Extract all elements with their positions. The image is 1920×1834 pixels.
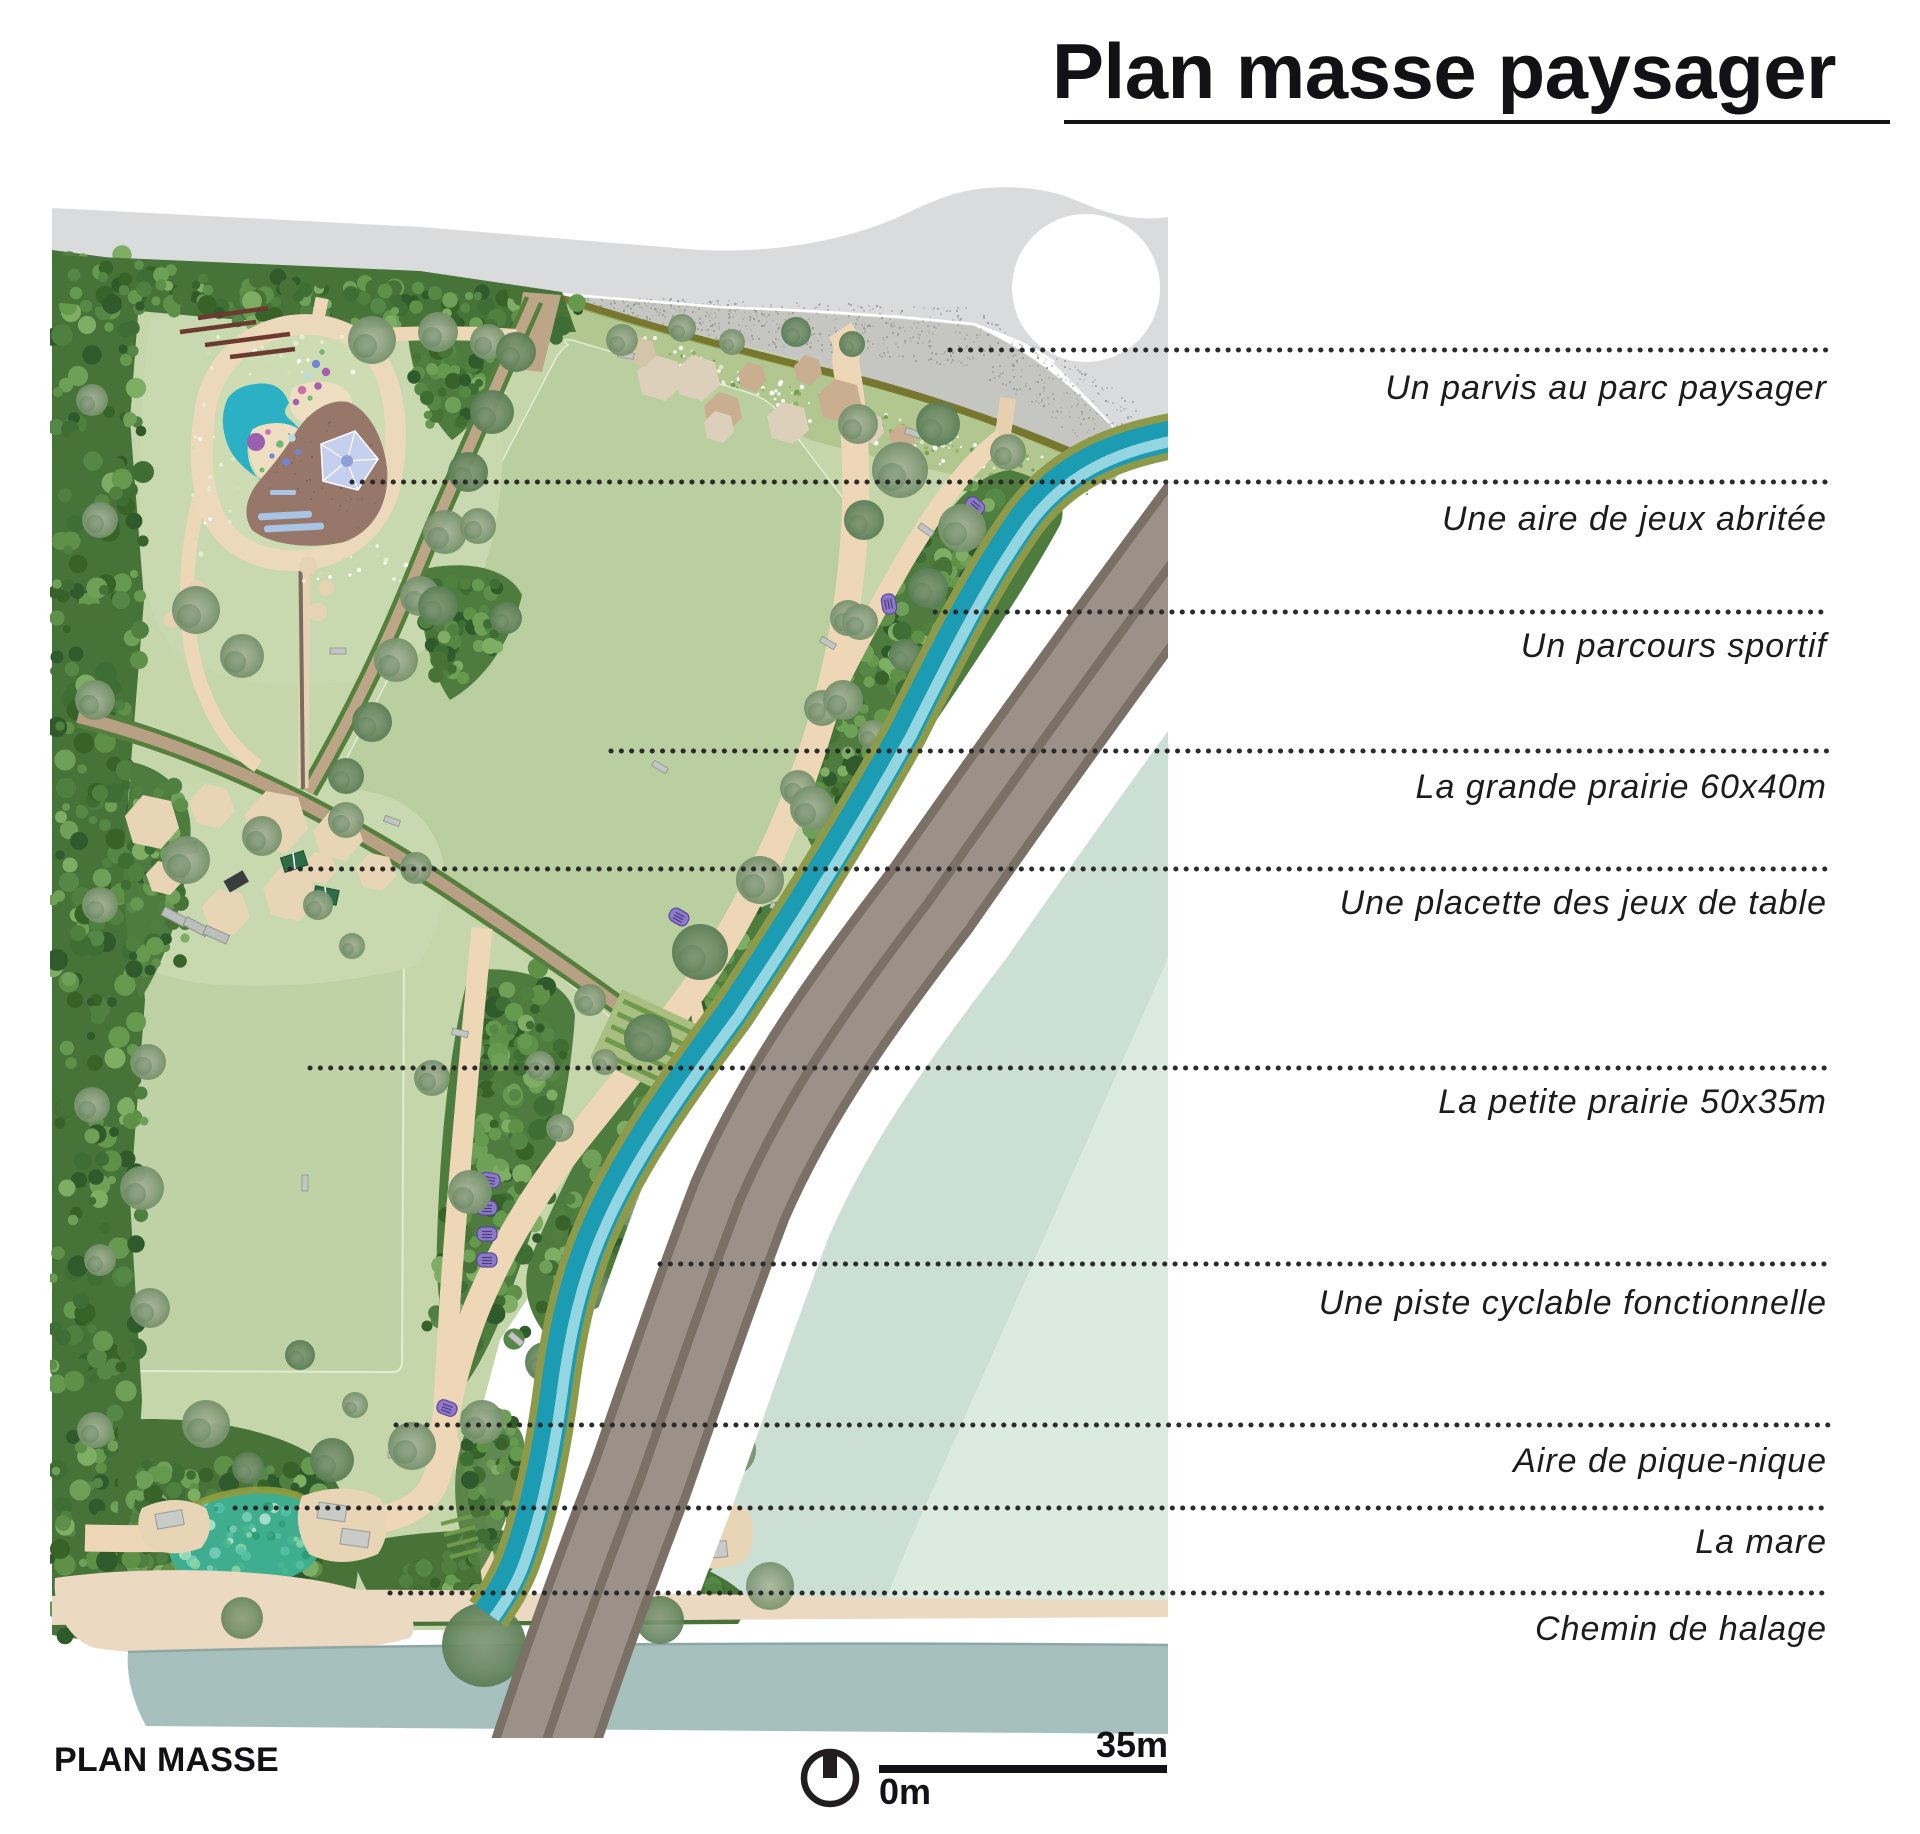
svg-text:Une piste cyclable fonctionnel: Une piste cyclable fonctionnelle <box>1319 1284 1827 1322</box>
svg-text:Une placette des jeux de table: Une placette des jeux de table <box>1340 884 1827 922</box>
svg-text:Une aire de jeux abritée: Une aire de jeux abritée <box>1442 500 1827 538</box>
svg-text:Plan masse paysager: Plan masse paysager <box>1052 27 1836 115</box>
svg-text:Chemin de halage: Chemin de halage <box>1535 1610 1827 1648</box>
svg-text:La mare: La mare <box>1695 1523 1827 1561</box>
svg-text:La grande prairie 60x40m: La grande prairie 60x40m <box>1416 768 1827 806</box>
svg-text:Un parvis au parc paysager: Un parvis au parc paysager <box>1385 369 1827 407</box>
svg-text:PLAN MASSE: PLAN MASSE <box>54 1741 279 1779</box>
svg-text:Un parcours sportif: Un parcours sportif <box>1521 627 1830 665</box>
svg-text:Aire de pique-nique: Aire de pique-nique <box>1511 1442 1827 1480</box>
svg-text:La petite prairie 50x35m: La petite prairie 50x35m <box>1438 1083 1827 1121</box>
svg-text:35m: 35m <box>1096 1724 1168 1765</box>
svg-text:0m: 0m <box>879 1771 931 1812</box>
